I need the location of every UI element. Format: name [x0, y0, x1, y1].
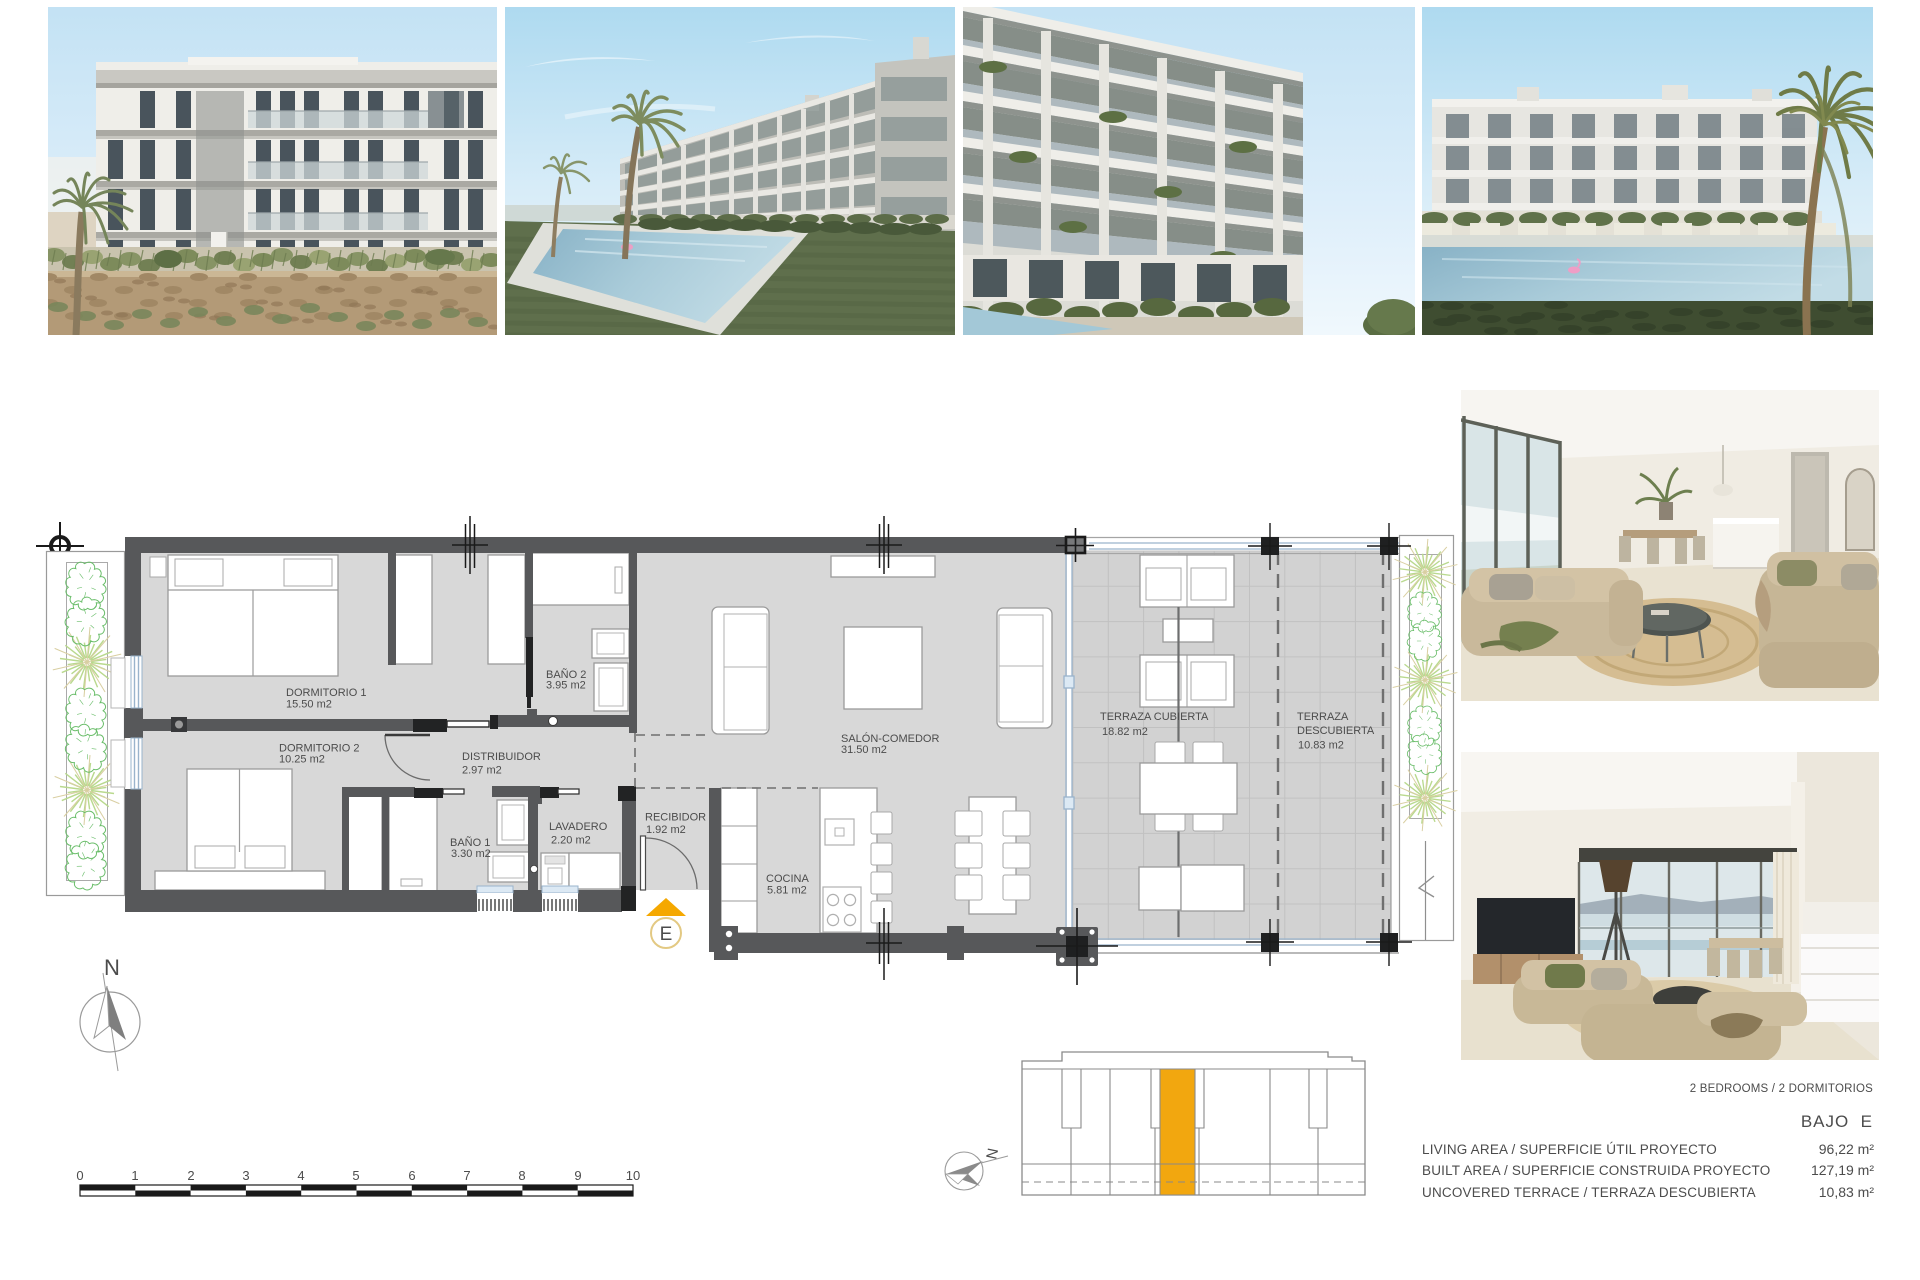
svg-text:9: 9 [574, 1168, 581, 1183]
svg-text:127,19 m²: 127,19 m² [1811, 1162, 1874, 1178]
svg-text:2.20 m2: 2.20 m2 [551, 835, 591, 847]
svg-text:3.95 m2: 3.95 m2 [546, 680, 586, 692]
svg-text:UNCOVERED TERRACE / TERRAZA DE: UNCOVERED TERRACE / TERRAZA DESCUBIERTA [1422, 1185, 1756, 1200]
svg-text:2: 2 [187, 1168, 194, 1183]
svg-text:N: N [104, 955, 120, 980]
svg-text:LIVING AREA / SUPERFICIE ÚTIL: LIVING AREA / SUPERFICIE ÚTIL PROYECTO [1422, 1142, 1717, 1157]
svg-text:2.97 m2: 2.97 m2 [462, 765, 502, 777]
svg-text:18.82 m2: 18.82 m2 [1102, 726, 1148, 738]
svg-text:10.83 m2: 10.83 m2 [1298, 740, 1344, 752]
svg-text:BUILT AREA / SUPERFICIE CONSTR: BUILT AREA / SUPERFICIE CONSTRUIDA PROYE… [1422, 1163, 1770, 1178]
svg-text:RECIBIDOR: RECIBIDOR [645, 812, 706, 824]
svg-text:8: 8 [518, 1168, 525, 1183]
svg-text:DORMITORIO 1: DORMITORIO 1 [286, 687, 366, 699]
svg-text:TERRAZA CUBIERTA: TERRAZA CUBIERTA [1100, 711, 1209, 723]
svg-text:1.92 m2: 1.92 m2 [646, 824, 686, 836]
svg-text:2 BEDROOMS / 2 DORMITORIOS: 2 BEDROOMS / 2 DORMITORIOS [1690, 1083, 1873, 1095]
svg-text:15.50 m2: 15.50 m2 [286, 699, 332, 711]
svg-text:TERRAZA: TERRAZA [1297, 711, 1349, 723]
svg-text:5: 5 [352, 1168, 359, 1183]
svg-text:3: 3 [242, 1168, 249, 1183]
svg-text:0: 0 [76, 1168, 83, 1183]
svg-text:10,83 m²: 10,83 m² [1819, 1184, 1875, 1200]
svg-text:7: 7 [463, 1168, 470, 1183]
svg-text:96,22 m²: 96,22 m² [1819, 1141, 1875, 1157]
svg-text:5.81 m2: 5.81 m2 [767, 885, 807, 897]
svg-text:10.25 m2: 10.25 m2 [279, 754, 325, 766]
svg-text:DISTRIBUIDOR: DISTRIBUIDOR [462, 751, 541, 763]
svg-text:E: E [660, 924, 673, 945]
svg-text:4: 4 [297, 1168, 304, 1183]
svg-text:1: 1 [131, 1168, 138, 1183]
svg-text:COCINA: COCINA [766, 873, 809, 885]
svg-text:DESCUBIERTA: DESCUBIERTA [1297, 725, 1375, 737]
svg-text:6: 6 [408, 1168, 415, 1183]
svg-text:BAJO E: BAJO E [1801, 1112, 1873, 1131]
svg-text:3.30 m2: 3.30 m2 [451, 848, 491, 860]
svg-text:LAVADERO: LAVADERO [549, 821, 608, 833]
svg-text:10: 10 [626, 1168, 640, 1183]
svg-text:31.50 m2: 31.50 m2 [841, 744, 887, 756]
